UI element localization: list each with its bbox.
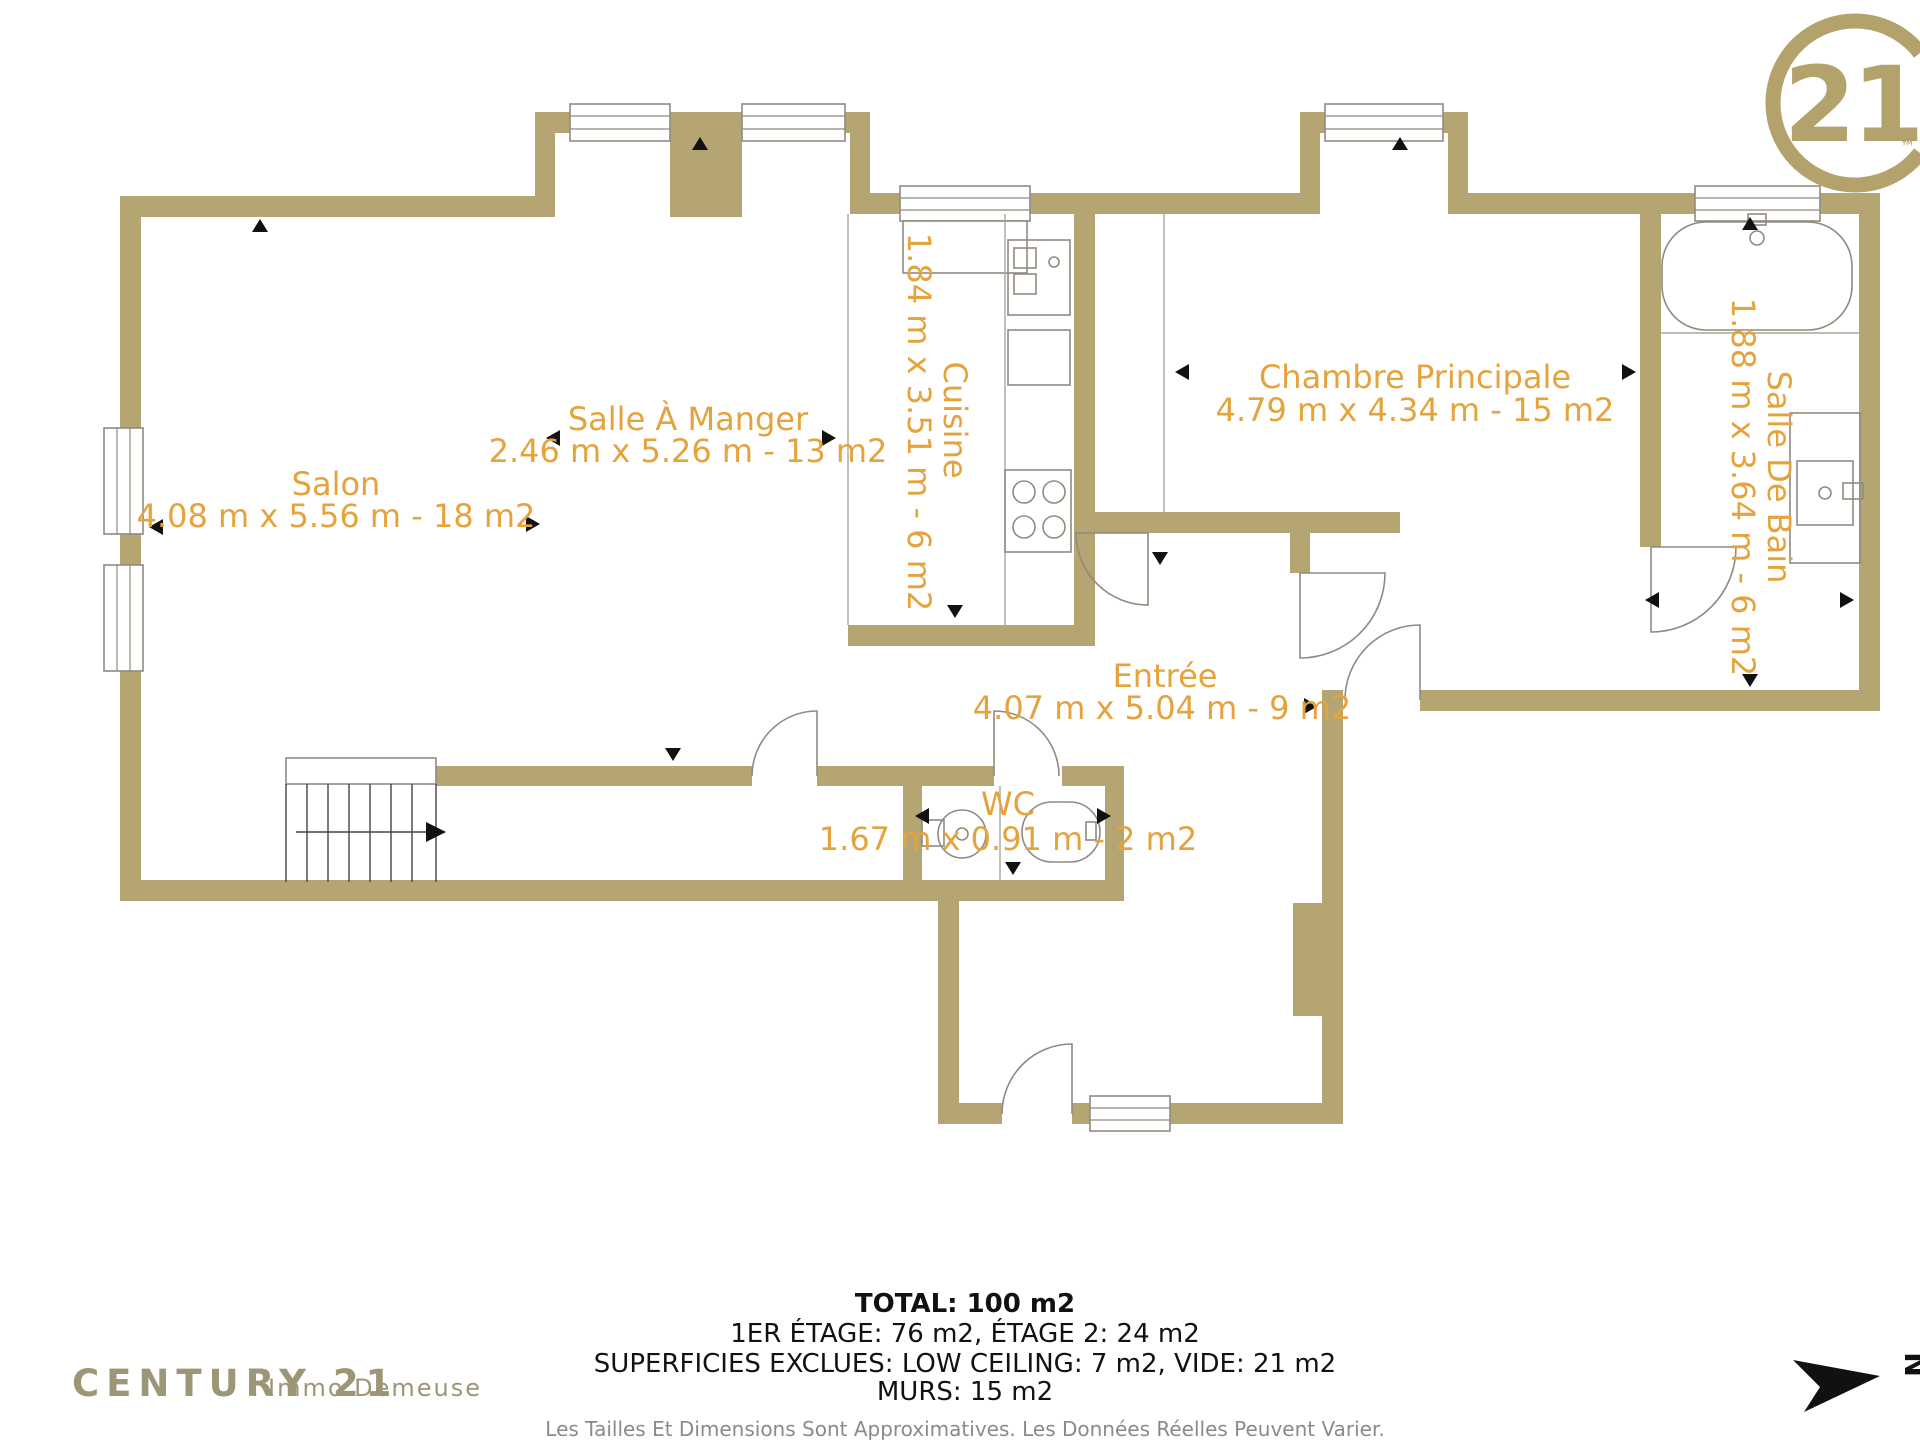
wall-segment (1420, 690, 1880, 711)
stove-burner (1043, 481, 1065, 503)
window (1695, 186, 1820, 221)
dimension-marker (1645, 592, 1659, 608)
room-dims-salle-de-bain: 1.88 m x 3.64 m - 6 m2 (1724, 298, 1762, 676)
wall-segment (1322, 690, 1343, 1124)
room-dims-chambre: 4.79 m x 4.34 m - 15 m2 (1216, 391, 1615, 429)
wall-segment (120, 880, 1124, 901)
wall-segment (817, 766, 994, 786)
bathroom-basin (1797, 461, 1853, 525)
door-arc (1002, 1044, 1072, 1114)
room-dims-salle-a-manger: 2.46 m x 5.26 m - 13 m2 (489, 432, 888, 470)
wall-segment (959, 1103, 1002, 1124)
window (742, 104, 845, 141)
door-arc (752, 711, 817, 776)
stove-burner (1013, 516, 1035, 538)
wall-segment (938, 901, 959, 1124)
century21-logo: 21 ™ (1773, 21, 1920, 185)
door-arc (1300, 573, 1385, 658)
room-dims-entree: 4.07 m x 5.04 m - 9 m2 (973, 689, 1351, 727)
window (1090, 1096, 1170, 1131)
wall-segment (120, 196, 555, 217)
footer-brand-dot: . (252, 1377, 258, 1401)
summary-excluded: SUPERFICIES EXCLUES: LOW CEILING: 7 m2, … (594, 1349, 1336, 1379)
kitchen-unit (1008, 330, 1070, 385)
window (570, 104, 670, 141)
summary-walls: MURS: 15 m2 (877, 1377, 1053, 1407)
summary-floors: 1ER ÉTAGE: 76 m2, ÉTAGE 2: 24 m2 (730, 1317, 1200, 1349)
wall-segment (1640, 214, 1661, 547)
stove-burner (1043, 516, 1065, 538)
window (104, 565, 143, 671)
stove-burner (1013, 481, 1035, 503)
dimension-marker (1840, 592, 1854, 608)
wall-segment (1293, 903, 1322, 1016)
dimension-marker (1005, 862, 1021, 875)
window (1325, 104, 1443, 141)
wall-segment (1170, 1103, 1343, 1124)
wall-segment (1072, 1103, 1090, 1124)
summary-block: TOTAL: 100 m2 1ER ÉTAGE: 76 m2, ÉTAGE 2:… (545, 1289, 1384, 1440)
bathroom-vanity (1790, 413, 1860, 563)
summary-disclaimer: Les Tailles Et Dimensions Sont Approxima… (545, 1417, 1384, 1440)
room-dims-cuisine: 1.84 m x 3.51 m - 6 m2 (900, 233, 938, 611)
wall-segment (848, 625, 1095, 646)
wall-segment (1290, 533, 1310, 573)
room-label-salle-de-bain: Salle De Bain (1760, 371, 1798, 584)
north-label: N (1897, 1352, 1920, 1377)
dimension-marker (1622, 364, 1636, 380)
summary-total: TOTAL: 100 m2 (855, 1289, 1075, 1319)
stove (1005, 470, 1071, 552)
dimension-marker (1175, 364, 1189, 380)
stair-landing (286, 758, 436, 784)
staircase (286, 758, 446, 882)
floor-plan-canvas: Salon 4.08 m x 5.56 m - 18 m2 Salle À Ma… (0, 0, 1920, 1440)
dimension-marker (252, 219, 268, 232)
dimension-marker (1152, 552, 1168, 565)
room-dims-wc: 1.67 m x 0.91 m - 2 m2 (819, 820, 1197, 858)
wall-segment (120, 196, 141, 901)
wall-segment (436, 766, 752, 786)
dimension-marker (665, 748, 681, 761)
north-arrow-icon (1793, 1360, 1880, 1412)
wall-segment (1062, 766, 1124, 786)
wall-segment (1075, 512, 1400, 533)
room-label-cuisine: Cuisine (936, 361, 974, 478)
wall-segment (670, 112, 742, 217)
bathtub-faucet (1750, 231, 1764, 245)
room-label-wc: WC (981, 785, 1035, 823)
dimension-marker (947, 605, 963, 618)
door-arc (1651, 547, 1736, 632)
windows (104, 104, 1820, 1131)
fixtures (922, 214, 1863, 862)
footer-agency-name: Immo Demeuse (268, 1374, 482, 1402)
wall-segment (1859, 193, 1880, 711)
footer-brand: CENTURY 21 . Immo Demeuse (72, 1362, 482, 1405)
north-arrow: N (1793, 1352, 1920, 1412)
room-dims-salon: 4.08 m x 5.56 m - 18 m2 (137, 497, 536, 535)
c21-logo-tm: ™ (1900, 138, 1915, 156)
